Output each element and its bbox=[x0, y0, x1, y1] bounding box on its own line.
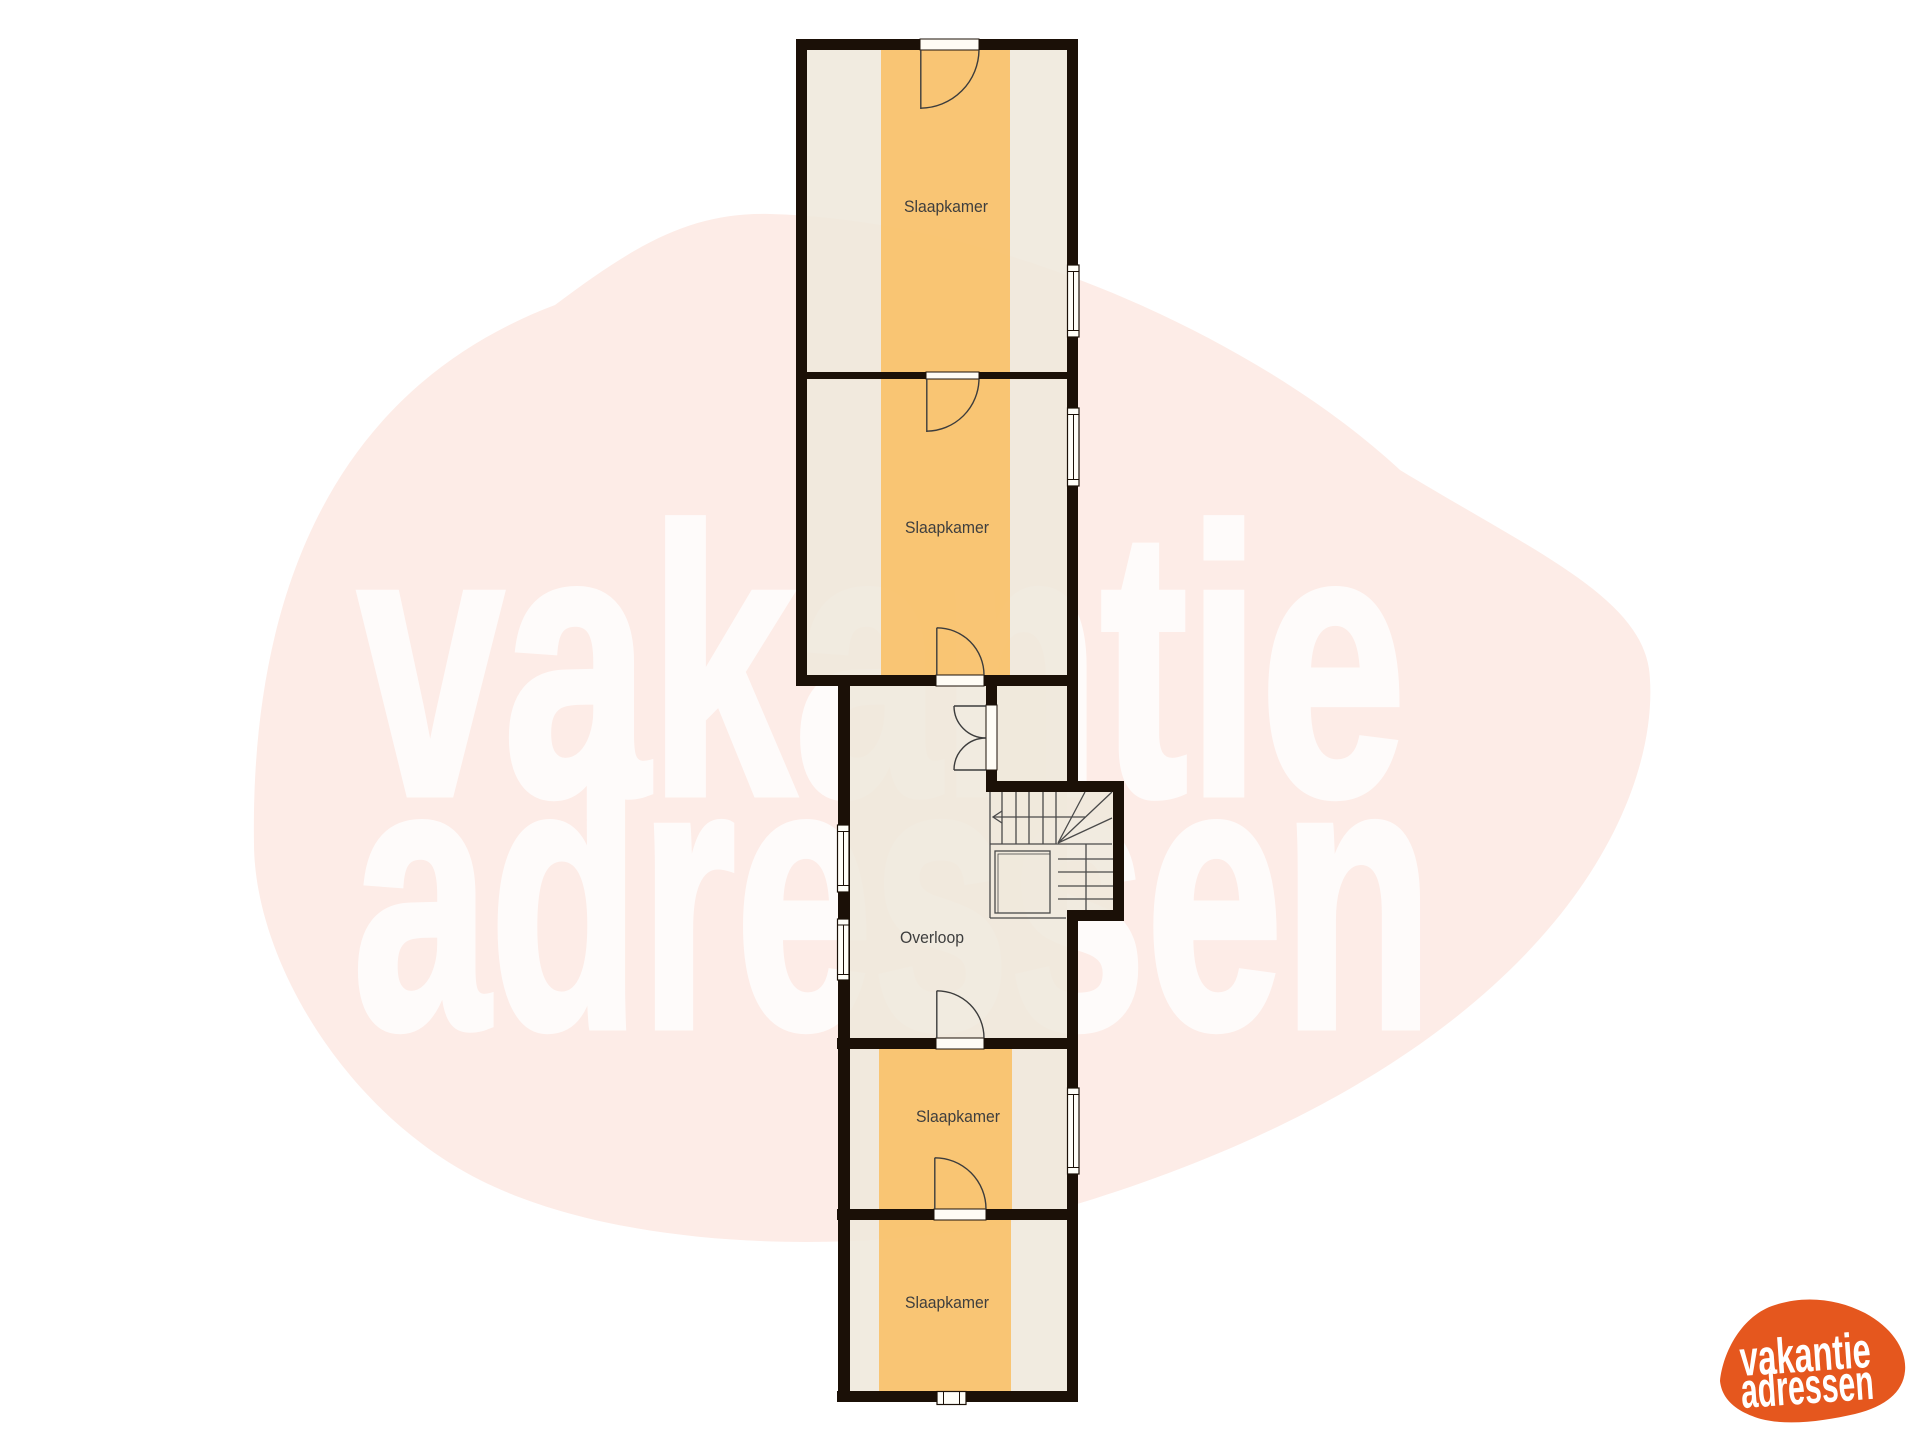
svg-text:Overloop: Overloop bbox=[900, 928, 964, 947]
svg-text:Slaapkamer: Slaapkamer bbox=[916, 1107, 1000, 1126]
svg-text:Slaapkamer: Slaapkamer bbox=[905, 518, 989, 537]
svg-text:adressen: adressen bbox=[1739, 1354, 1876, 1419]
svg-text:Slaapkamer: Slaapkamer bbox=[904, 197, 988, 216]
svg-text:Slaapkamer: Slaapkamer bbox=[905, 1293, 989, 1312]
